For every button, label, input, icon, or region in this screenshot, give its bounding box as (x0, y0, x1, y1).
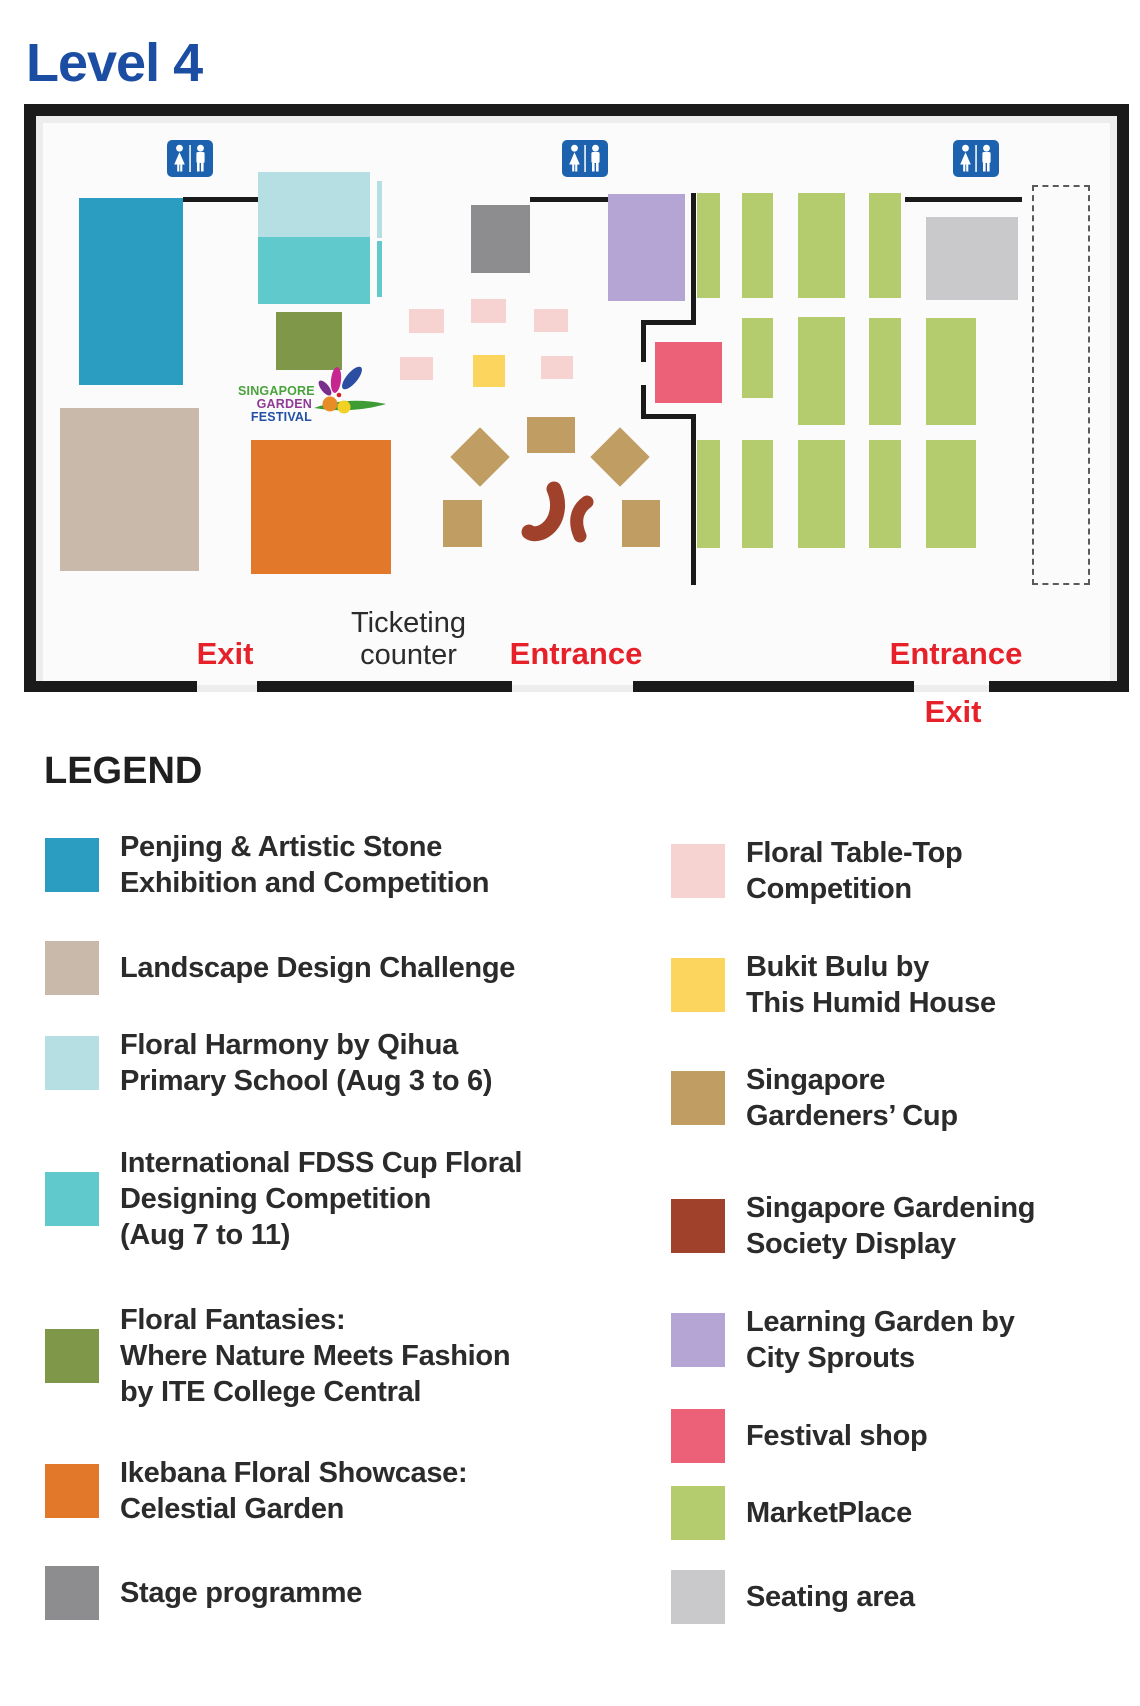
zone-floral-harmony (258, 172, 370, 237)
interior-wall (183, 197, 258, 202)
zone-marketplace (869, 318, 901, 425)
interior-wall (691, 193, 696, 325)
legend-label-gardeners-cup: Singapore Gardeners’ Cup (746, 1062, 958, 1134)
legend-label-bukit-bulu: Bukit Bulu by This Humid House (746, 949, 996, 1021)
legend-row-floral-table-top: Floral Table-Top Competition (671, 835, 1035, 907)
zone-seating-area (926, 217, 1018, 300)
bottom-wall-segment (24, 681, 197, 692)
legend-swatch-international-fdss (45, 1172, 99, 1226)
zone-marketplace (742, 193, 773, 298)
legend-row-seating-area: Seating area (671, 1570, 1035, 1624)
entrance-left-label: Entrance (496, 638, 656, 670)
exit-right-label: Exit (908, 696, 998, 728)
exit-left-label: Exit (180, 638, 270, 670)
legend-swatch-floral-fantasies (45, 1329, 99, 1383)
zone-festival-shop (655, 342, 722, 403)
zone-marketplace (869, 193, 901, 298)
legend-label-floral-harmony: Floral Harmony by Qihua Primary School (… (120, 1027, 492, 1099)
interior-wall (641, 320, 696, 325)
restroom-icon (562, 140, 608, 177)
zone-marketplace (742, 440, 773, 548)
entrance-right-label: Entrance (876, 638, 1036, 670)
legend-swatch-penjing-artistic-stone (45, 838, 99, 892)
legend-swatch-ikebana-floral-showcase (45, 1464, 99, 1518)
zone-floral-table-top (541, 356, 573, 379)
zone-landscape-design-challenge (60, 408, 199, 571)
legend-row-bukit-bulu: Bukit Bulu by This Humid House (671, 949, 1035, 1021)
legend-row-international-fdss: International FDSS Cup Floral Designing … (45, 1145, 522, 1253)
zone-gardeners-cup (527, 417, 575, 453)
legend-label-learning-garden: Learning Garden by City Sprouts (746, 1304, 1015, 1376)
legend-label-floral-fantasies: Floral Fantasies: Where Nature Meets Fas… (120, 1302, 510, 1410)
legend-label-ikebana-floral-showcase: Ikebana Floral Showcase: Celestial Garde… (120, 1455, 467, 1527)
legend-column-left: Penjing & Artistic Stone Exhibition and … (45, 829, 522, 1620)
zone-gardeners-cup (622, 500, 660, 547)
bottom-wall-segment (989, 681, 1129, 692)
legend-swatch-seating-area (671, 1570, 725, 1624)
zone-marketplace (869, 440, 901, 548)
bottom-wall-segment (257, 681, 512, 692)
legend-swatch-stage-programme (45, 1566, 99, 1620)
legend-row-floral-harmony: Floral Harmony by Qihua Primary School (… (45, 1027, 522, 1099)
zone-marketplace (798, 317, 845, 425)
legend-label-landscape-design-challenge: Landscape Design Challenge (120, 950, 515, 986)
zone-floral-table-top (471, 299, 506, 323)
legend-swatch-floral-table-top (671, 844, 725, 898)
zone-stage-programme (471, 205, 530, 273)
zone-marketplace (742, 318, 773, 398)
zone-ikebana-floral-showcase (251, 440, 391, 574)
legend-row-learning-garden: Learning Garden by City Sprouts (671, 1304, 1035, 1376)
zone-learning-garden (608, 194, 685, 301)
gardening-society-shape-right (566, 495, 596, 543)
legend-row-gardening-society: Singapore Gardening Society Display (671, 1190, 1035, 1262)
bottom-wall-segment (633, 681, 914, 692)
sgf-logo-text: SINGAPORE GARDEN FESTIVAL (238, 385, 312, 424)
sgf-logo-flower-icon (310, 364, 390, 434)
legend-column-right: Floral Table-Top CompetitionBukit Bulu b… (671, 835, 1035, 1624)
zone-international-fdss (258, 237, 370, 304)
interior-wall (641, 320, 646, 362)
legend-label-seating-area: Seating area (746, 1579, 915, 1615)
legend-swatch-landscape-design-challenge (45, 941, 99, 995)
legend-label-marketplace: MarketPlace (746, 1495, 912, 1531)
legend-swatch-gardening-society (671, 1199, 725, 1253)
zone-gardeners-cup (443, 500, 482, 547)
legend-swatch-gardeners-cup (671, 1071, 725, 1125)
interior-wall (530, 197, 608, 202)
dashed-area-outline (1032, 185, 1090, 585)
restroom-icon (167, 140, 213, 177)
legend-swatch-marketplace (671, 1486, 725, 1540)
legend-label-penjing-artistic-stone: Penjing & Artistic Stone Exhibition and … (120, 829, 489, 901)
gardening-society-shape-left (520, 481, 566, 543)
interior-wall (641, 414, 696, 419)
zone-marketplace (798, 440, 845, 548)
legend-row-penjing-artistic-stone: Penjing & Artistic Stone Exhibition and … (45, 829, 522, 901)
zone-floral-fantasies (276, 312, 342, 370)
zone-penjing-artistic-stone (79, 198, 183, 385)
legend-row-floral-fantasies: Floral Fantasies: Where Nature Meets Fas… (45, 1302, 522, 1410)
legend-row-marketplace: MarketPlace (671, 1486, 1035, 1540)
logo-line-festival: FESTIVAL (238, 411, 312, 424)
zone-floral-harmony-strip (377, 181, 382, 238)
zone-marketplace (926, 318, 976, 425)
zone-marketplace (798, 193, 845, 298)
legend-swatch-learning-garden (671, 1313, 725, 1367)
restroom-icon (953, 140, 999, 177)
legend-label-festival-shop: Festival shop (746, 1418, 927, 1454)
ticketing-counter-label: Ticketing counter (330, 607, 487, 671)
zone-marketplace (926, 440, 976, 548)
zone-floral-table-top (534, 309, 568, 332)
legend-row-stage-programme: Stage programme (45, 1566, 522, 1620)
page-title: Level 4 (26, 32, 202, 94)
legend-label-gardening-society: Singapore Gardening Society Display (746, 1190, 1035, 1262)
zone-marketplace (697, 440, 720, 548)
zone-marketplace (697, 193, 720, 298)
legend-label-stage-programme: Stage programme (120, 1575, 362, 1611)
legend-swatch-floral-harmony (45, 1036, 99, 1090)
legend-row-landscape-design-challenge: Landscape Design Challenge (45, 941, 522, 995)
legend-row-ikebana-floral-showcase: Ikebana Floral Showcase: Celestial Garde… (45, 1455, 522, 1527)
legend-label-floral-table-top: Floral Table-Top Competition (746, 835, 962, 907)
legend-row-festival-shop: Festival shop (671, 1409, 1035, 1463)
interior-wall (691, 414, 696, 585)
festival-map-page: Level 4 (0, 0, 1140, 1706)
legend-title: LEGEND (44, 750, 202, 793)
legend-swatch-festival-shop (671, 1409, 725, 1463)
zone-floral-table-top (400, 357, 433, 380)
interior-wall (905, 197, 1022, 202)
zone-floral-table-top (409, 309, 444, 333)
zone-international-fdss-strip (377, 241, 382, 297)
legend-label-international-fdss: International FDSS Cup Floral Designing … (120, 1145, 522, 1253)
legend-row-gardeners-cup: Singapore Gardeners’ Cup (671, 1062, 1035, 1134)
legend-swatch-bukit-bulu (671, 958, 725, 1012)
zone-bukit-bulu (473, 355, 505, 387)
